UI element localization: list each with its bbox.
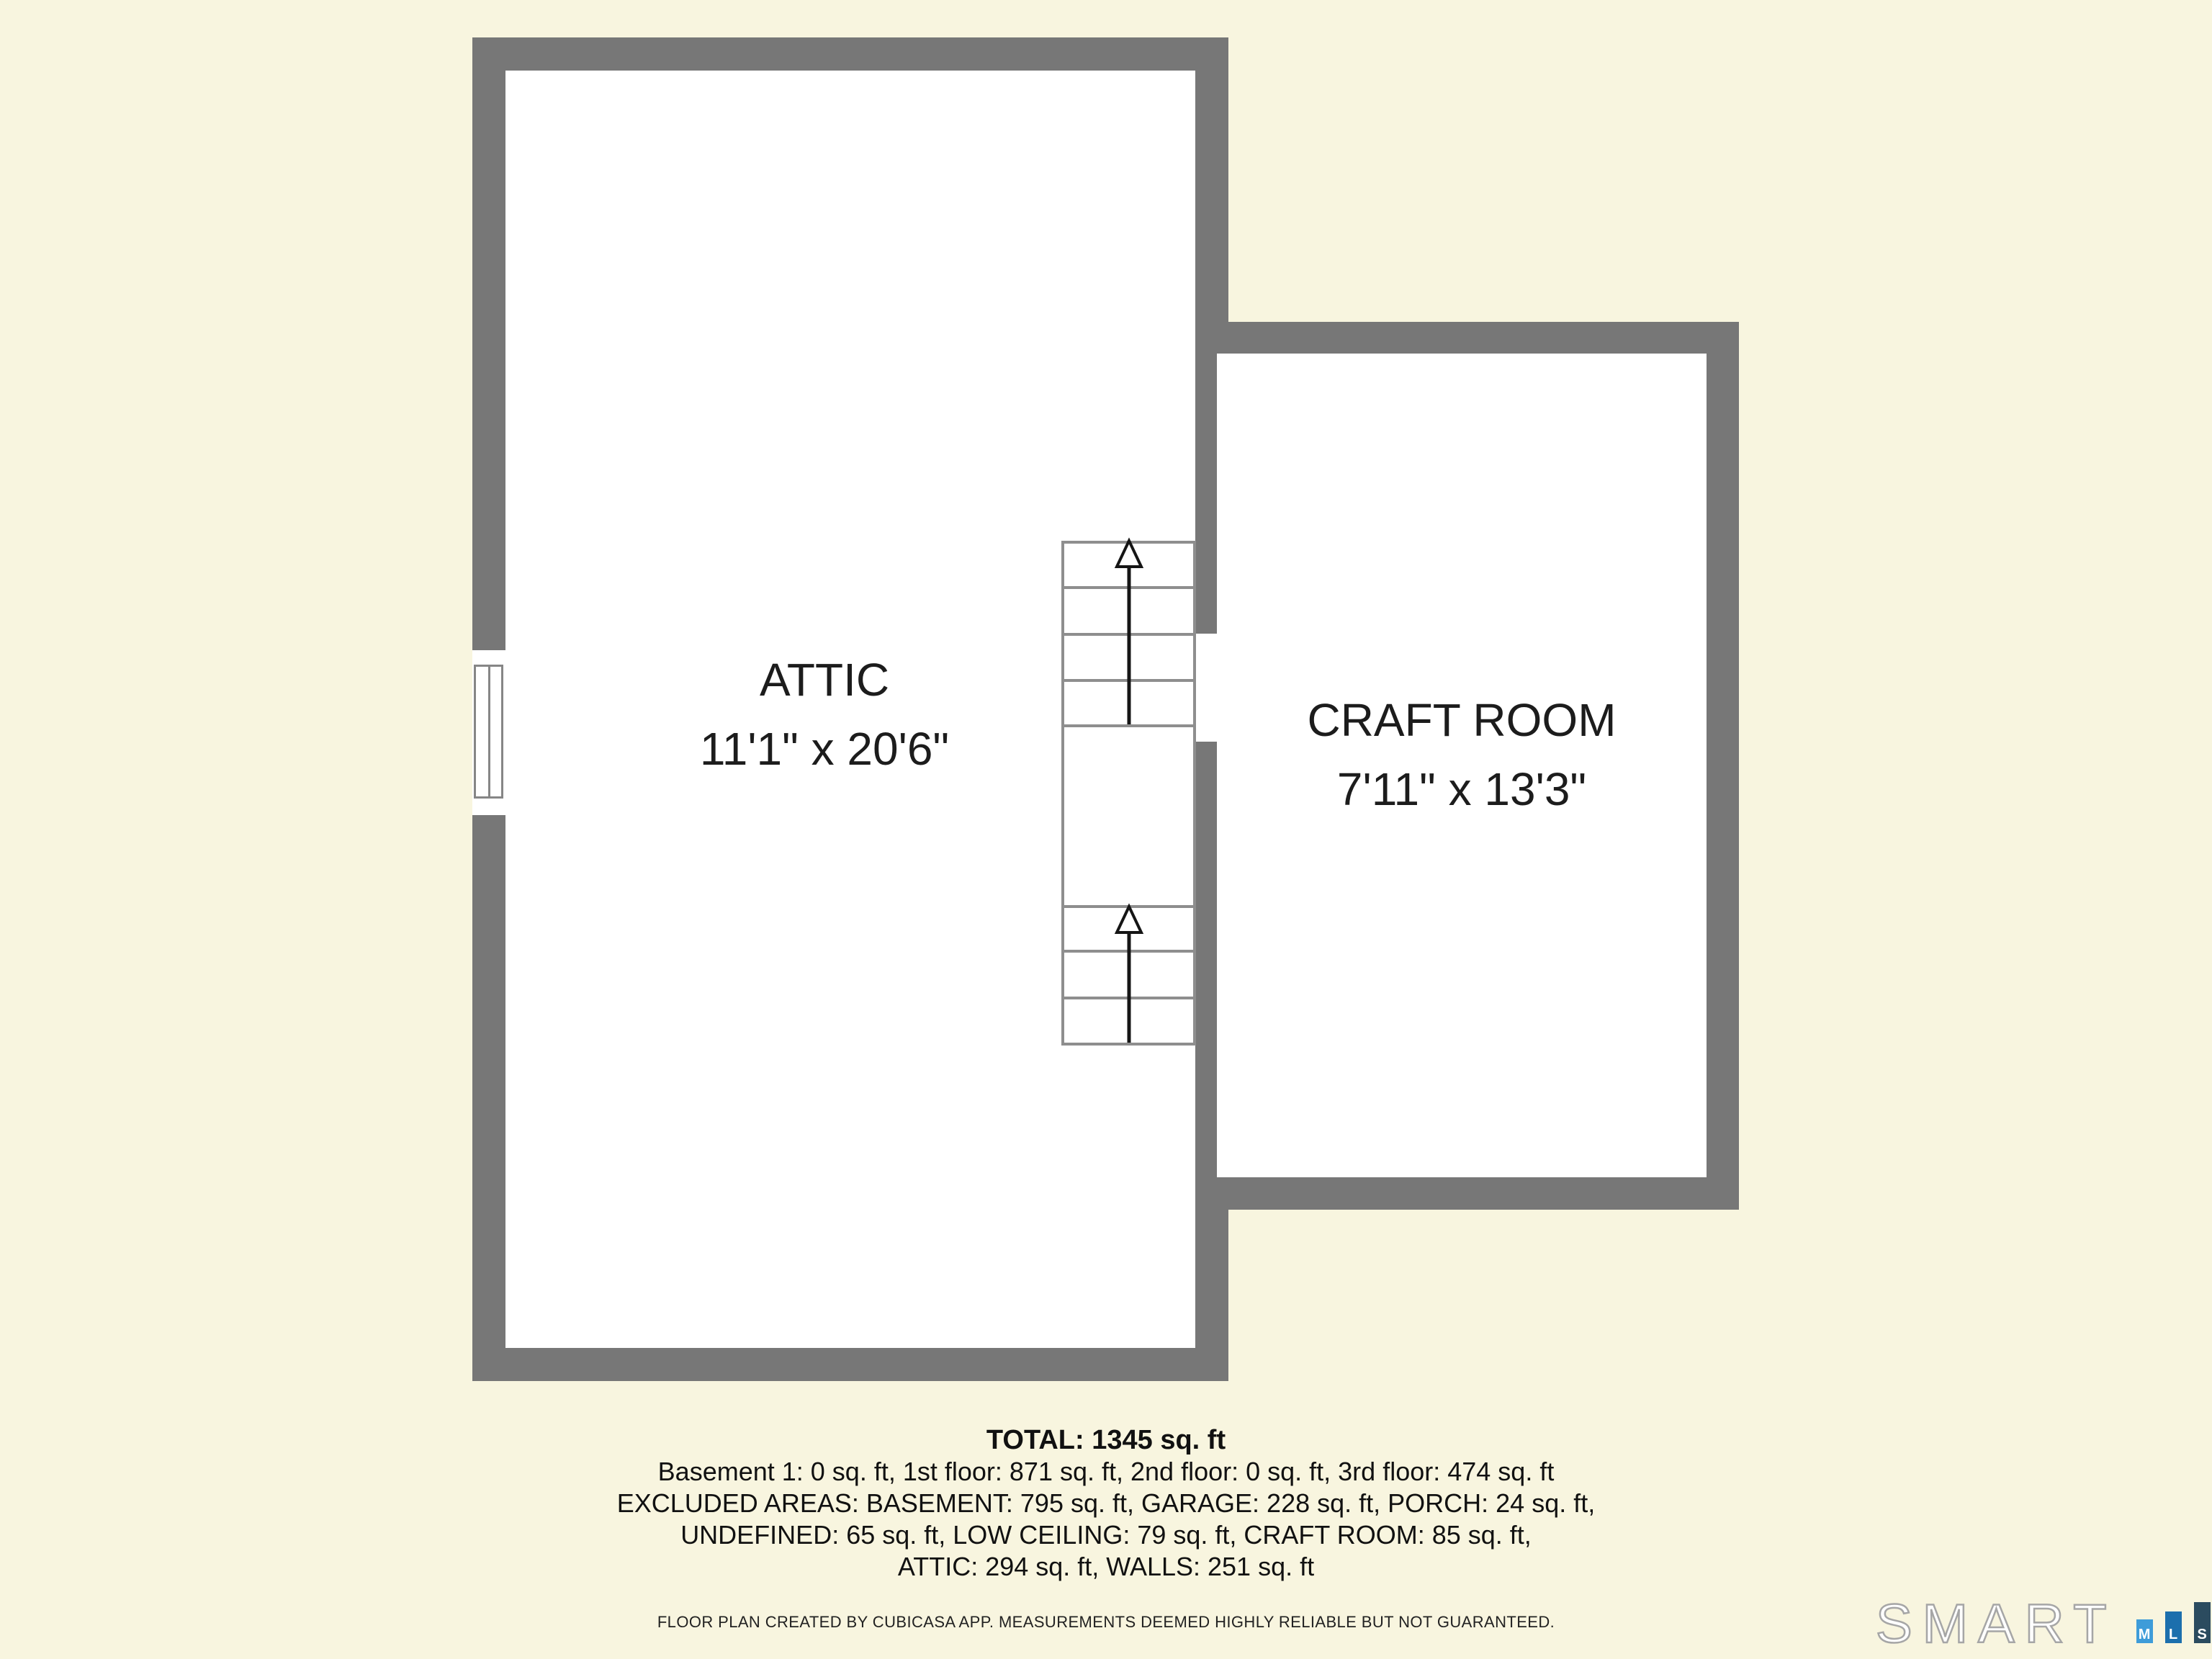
logo-bar-m: M — [2136, 1619, 2153, 1643]
window-frame — [474, 665, 503, 799]
door-opening — [1195, 634, 1217, 742]
floor-plan-canvas: ATTIC 11'1" x 20'6" CRAFT ROOM 7'11" x 1… — [0, 0, 2212, 1659]
room-name: ATTIC — [504, 645, 1145, 714]
area-breakdown-line: EXCLUDED AREAS: BASEMENT: 795 sq. ft, GA… — [0, 1488, 2212, 1519]
logo-bar-letter: S — [2197, 1626, 2206, 1643]
stairs-up-arrow-icon — [1112, 902, 1146, 1046]
attic-wall-right-upper — [1195, 37, 1228, 322]
area-summary: TOTAL: 1345 sq. ft Basement 1: 0 sq. ft,… — [0, 1424, 2212, 1583]
attic-wall-top — [472, 37, 1228, 71]
total-area-text: TOTAL: 1345 sq. ft — [0, 1424, 2212, 1456]
attic-wall-bottom — [472, 1348, 1228, 1381]
room-name: CRAFT ROOM — [1217, 685, 1707, 755]
logo-brand-text: SMART — [1876, 1597, 2117, 1652]
room-dimensions: 7'11" x 13'3" — [1217, 755, 1707, 824]
logo-bar-letter: L — [2169, 1626, 2177, 1643]
logo-bar-s: S — [2194, 1602, 2211, 1643]
logo-bar-letter: M — [2139, 1626, 2151, 1643]
smartmls-logo: SMART M L S — [1876, 1583, 2211, 1643]
craft-room-label-block: CRAFT ROOM 7'11" x 13'3" — [1217, 685, 1707, 824]
logo-bar-l: L — [2165, 1611, 2182, 1643]
area-breakdown-line: UNDEFINED: 65 sq. ft, LOW CEILING: 79 sq… — [0, 1519, 2212, 1551]
area-breakdown-line: ATTIC: 294 sq. ft, WALLS: 251 sq. ft — [0, 1551, 2212, 1583]
area-breakdown-line: Basement 1: 0 sq. ft, 1st floor: 871 sq.… — [0, 1456, 2212, 1488]
attic-label-block: ATTIC 11'1" x 20'6" — [504, 645, 1145, 783]
window-divider — [488, 667, 490, 796]
attic-wall-right-lower — [1195, 1210, 1228, 1381]
room-dimensions: 11'1" x 20'6" — [504, 714, 1145, 783]
page-background: { "colors": { "background": "#F8F5DF", "… — [0, 0, 2212, 1659]
